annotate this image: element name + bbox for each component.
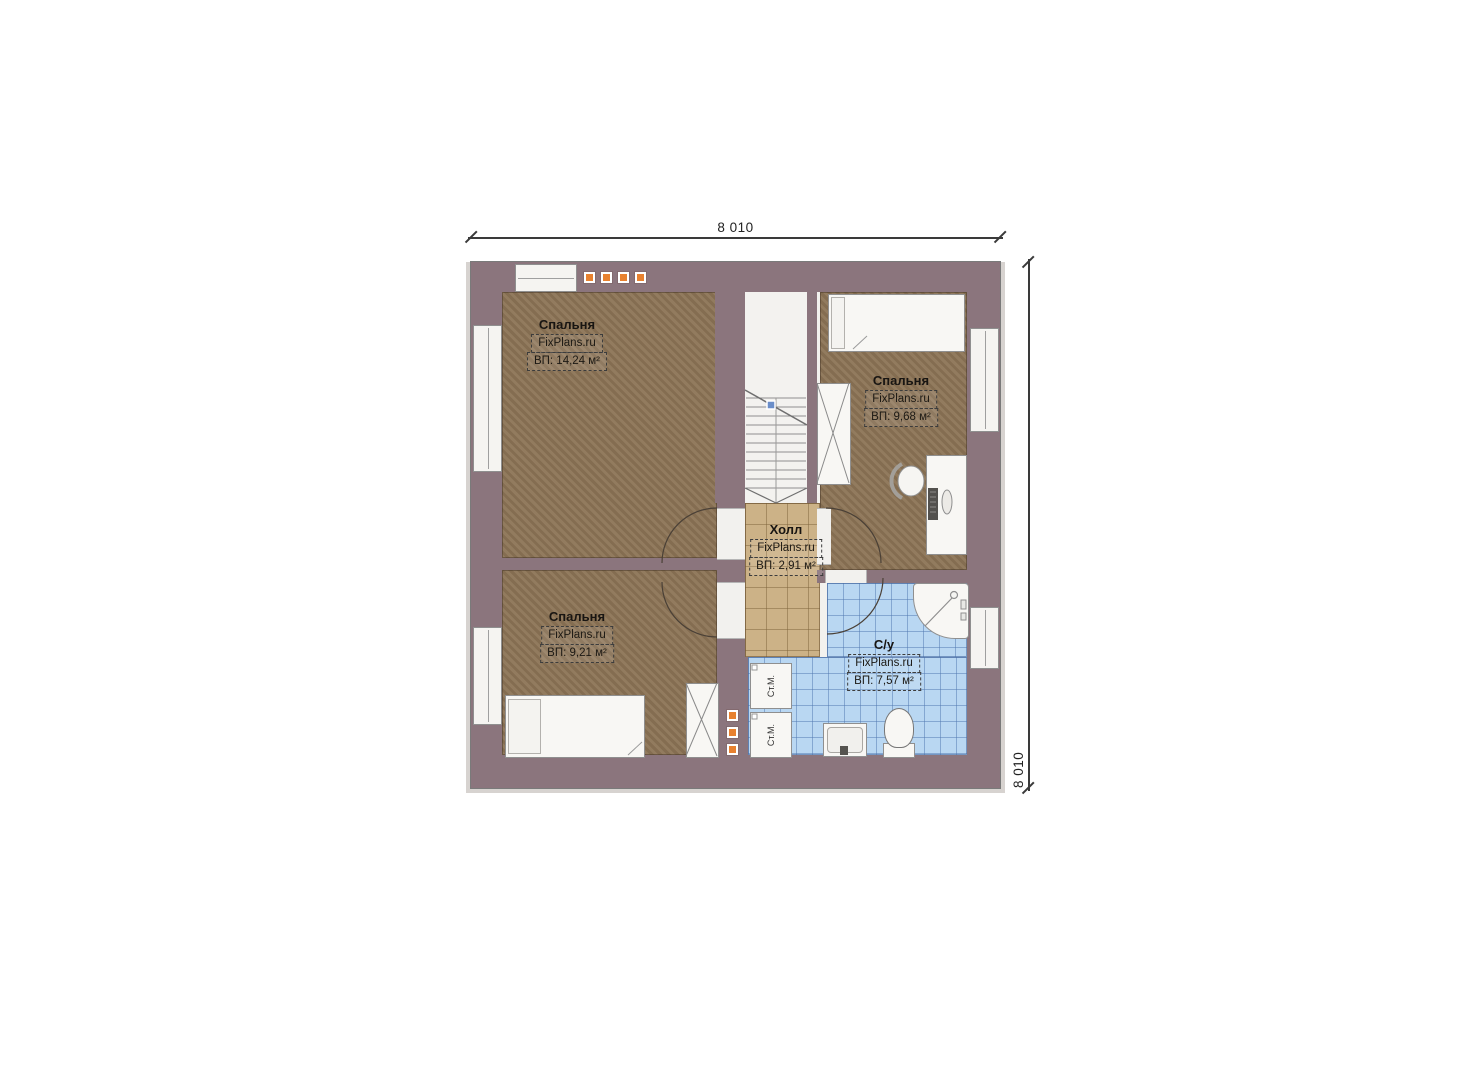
- door-opening-bedroom-bottom-left: [717, 582, 745, 639]
- room-area: ВП: 2,91 м²: [749, 557, 823, 576]
- wardrobe-icon: [817, 383, 851, 485]
- dimension-label-top: 8 010: [471, 220, 1000, 235]
- watermark: FixPlans.ru: [531, 334, 603, 353]
- roof-window-icon: [635, 272, 646, 283]
- window-right-lower: [970, 607, 999, 669]
- door-opening-bathroom: [825, 570, 867, 583]
- door-opening-bedroom-top-left: [717, 508, 745, 560]
- wall-bottom: [471, 755, 1000, 788]
- washing-machine-label: Ст.М.: [749, 715, 793, 755]
- watermark: FixPlans.ru: [848, 654, 920, 673]
- window-glass-line: [488, 328, 489, 469]
- wall-partition-left: [502, 558, 745, 570]
- dimension-line-top: [468, 237, 1003, 239]
- dimension-label-right: 8 010: [1011, 262, 1026, 788]
- room-label-bedroom-top-left: Спальня FixPlans.ru ВП: 14,24 м²: [527, 318, 607, 371]
- watermark: FixPlans.ru: [541, 626, 613, 645]
- washing-machine-label: Ст.М.: [749, 666, 793, 706]
- room-name: Холл: [770, 523, 803, 536]
- room-label-bedroom-bottom-left: Спальня FixPlans.ru ВП: 9,21 м²: [540, 610, 614, 663]
- room-name: С/у: [874, 638, 894, 651]
- window-glass-line: [488, 630, 489, 722]
- window-glass-line: [518, 278, 574, 279]
- sink-faucet-icon: [840, 746, 848, 755]
- roof-window-icon: [727, 744, 738, 755]
- room-area: ВП: 14,24 м²: [527, 352, 607, 371]
- room-area: ВП: 9,68 м²: [864, 408, 938, 427]
- floor-plan: Ст.М. Ст.М.: [471, 262, 1000, 788]
- bed-icon: [828, 294, 965, 352]
- dimension-line-right: [1028, 259, 1030, 791]
- watermark: FixPlans.ru: [865, 390, 937, 409]
- washing-machine-icon: Ст.М.: [750, 663, 792, 709]
- pillow-icon: [831, 297, 845, 349]
- window-top: [515, 264, 577, 292]
- window-right-upper: [970, 328, 999, 432]
- pillow-icon: [508, 699, 541, 754]
- toilet-icon: [884, 708, 914, 748]
- wall-below-hall: [717, 657, 748, 755]
- roof-window-icon: [601, 272, 612, 283]
- desk-icon: [926, 455, 967, 555]
- roof-window-icon: [618, 272, 629, 283]
- window-glass-line: [985, 331, 986, 429]
- room-name: Спальня: [549, 610, 605, 623]
- room-area: ВП: 7,57 м²: [847, 672, 921, 691]
- window-left-upper: [473, 325, 502, 472]
- room-area: ВП: 9,21 м²: [540, 644, 614, 663]
- room-name: Спальня: [873, 374, 929, 387]
- room-label-hall: Холл FixPlans.ru ВП: 2,91 м²: [749, 523, 823, 576]
- room-name: Спальня: [539, 318, 595, 331]
- stairwell: [745, 292, 807, 503]
- window-glass-line: [985, 610, 986, 666]
- wall-stairs-west: [715, 292, 745, 503]
- floor-plan-page: 8 010 8 010: [0, 0, 1474, 1080]
- washing-machine-icon: Ст.М.: [750, 712, 792, 758]
- window-left-lower: [473, 627, 502, 725]
- roof-window-icon: [727, 727, 738, 738]
- room-label-bathroom: С/у FixPlans.ru ВП: 7,57 м²: [847, 638, 921, 691]
- room-label-bedroom-right: Спальня FixPlans.ru ВП: 9,68 м²: [864, 374, 938, 427]
- roof-window-icon: [584, 272, 595, 283]
- wardrobe-icon: [686, 683, 719, 758]
- plan-outer-edge: Ст.М. Ст.М.: [466, 262, 1005, 793]
- wall-stairs-east: [807, 292, 817, 503]
- watermark: FixPlans.ru: [750, 539, 822, 558]
- roof-window-icon: [727, 710, 738, 721]
